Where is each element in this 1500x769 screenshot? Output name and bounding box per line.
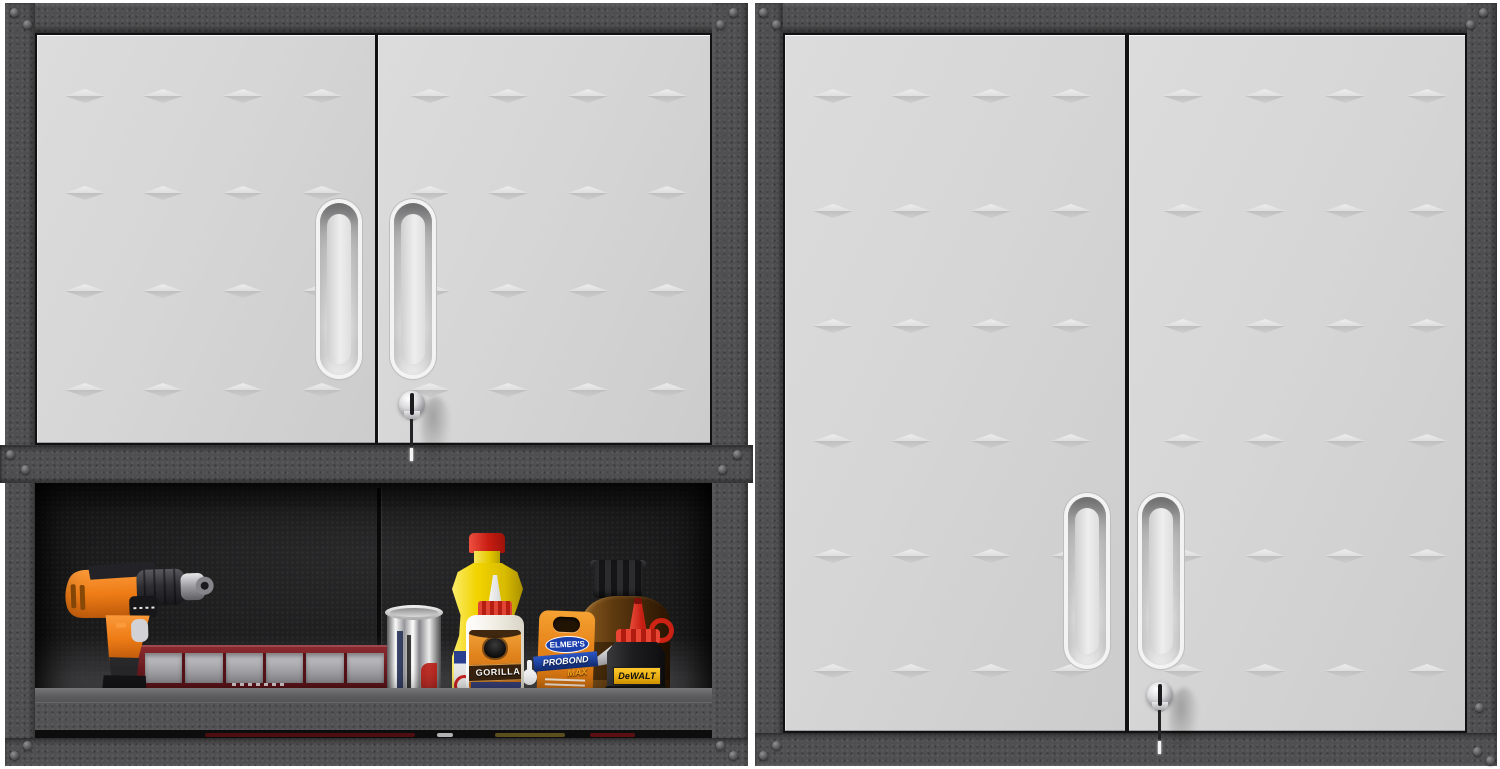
rivet <box>733 450 742 459</box>
emboss-diamond <box>1245 89 1285 103</box>
emboss-diamond <box>1407 549 1447 563</box>
emboss-diamond <box>488 186 528 200</box>
rivet <box>772 741 781 750</box>
chrome-canister <box>385 605 443 693</box>
drill-rear-vent <box>71 584 77 608</box>
gorilla-glue-bottle: GORILLA <box>466 575 524 693</box>
cabinet-open-shelf: ELMER'S PROBOND MAX GORILLA <box>5 3 748 766</box>
emboss-diamond <box>568 284 608 298</box>
dewalt-brand-label: DeWALT <box>613 667 661 685</box>
emboss-diamond <box>488 89 528 103</box>
dewalt-chalk-bottle: DeWALT <box>607 598 665 693</box>
lock-shadow <box>1169 688 1199 754</box>
emboss-diamond <box>143 89 183 103</box>
emboss-diamond <box>971 434 1011 448</box>
emboss-diamond <box>1245 434 1285 448</box>
rivet <box>772 20 781 29</box>
emboss-diamond <box>488 284 528 298</box>
cordless-drill <box>58 553 223 693</box>
frame-bottom-rail <box>5 738 748 766</box>
emboss-diamond <box>143 186 183 200</box>
lock-keyslot <box>410 393 414 415</box>
rivet <box>23 741 32 750</box>
gorilla-label-arc <box>469 630 521 638</box>
slot-reflection <box>495 733 565 737</box>
left-cabinet-doors-area <box>35 33 712 445</box>
emboss-diamond <box>65 284 105 298</box>
rivet <box>10 8 19 17</box>
drill-trigger <box>131 619 149 643</box>
right-cabinet-left-door <box>785 35 1125 731</box>
emboss-diamond <box>568 89 608 103</box>
rivet <box>1479 8 1488 17</box>
emboss-diamond <box>410 89 450 103</box>
emboss-diamond <box>813 89 853 103</box>
rivet <box>21 465 30 474</box>
rivet <box>6 450 15 459</box>
emboss-diamond <box>813 549 853 563</box>
emboss-diamond <box>891 204 931 218</box>
emboss-diamond <box>1245 549 1285 563</box>
emboss-diamond <box>302 383 342 397</box>
emboss-diamond <box>223 186 263 200</box>
emboss-diamond <box>65 186 105 200</box>
emboss-diamond <box>1325 204 1365 218</box>
emboss-diamond <box>1245 204 1285 218</box>
emboss-diamond <box>1051 434 1091 448</box>
emboss-diamond <box>1163 89 1203 103</box>
open-shelf-interior: ELMER'S PROBOND MAX GORILLA <box>35 480 712 693</box>
emboss-diamond <box>223 383 263 397</box>
key-tip <box>1158 741 1161 754</box>
rivet <box>1473 747 1482 756</box>
emboss-diamond <box>891 664 931 678</box>
emboss-diamond <box>143 284 183 298</box>
emboss-diamond <box>1325 89 1365 103</box>
frame-top-bar <box>5 3 748 33</box>
emboss-diamond <box>1325 319 1365 333</box>
organizer-small-print <box>232 683 288 686</box>
key-stem <box>1158 710 1161 742</box>
emboss-diamond <box>891 319 931 333</box>
emboss-diamond <box>1245 319 1285 333</box>
emboss-diamond <box>65 89 105 103</box>
emboss-diamond <box>1407 204 1447 218</box>
slot-reflection <box>590 733 635 737</box>
emboss-diamond <box>302 186 342 200</box>
rivet <box>1475 703 1484 712</box>
rivet <box>729 8 738 17</box>
canister-label-stripe <box>407 635 411 693</box>
emboss-diamond <box>813 204 853 218</box>
emboss-diamond <box>1163 319 1203 333</box>
frame-right-strip <box>1467 3 1497 766</box>
emboss-diamond <box>143 383 183 397</box>
right-cabinet-right-door-handle <box>1142 497 1180 665</box>
frame-top-bar <box>755 3 1497 33</box>
emboss-diamond <box>813 664 853 678</box>
rivet <box>10 751 19 760</box>
rivet <box>718 465 727 474</box>
emboss-diamond <box>971 549 1011 563</box>
emboss-diamond <box>488 383 528 397</box>
emboss-diamond <box>1407 319 1447 333</box>
shelf-front-panel <box>35 702 712 730</box>
emboss-diamond <box>1245 664 1285 678</box>
elmers-probond-package: ELMER'S PROBOND MAX <box>537 610 596 693</box>
gorilla-nozzle <box>485 575 505 603</box>
emboss-diamond <box>1325 664 1365 678</box>
emboss-diamond <box>1051 319 1091 333</box>
shelf-lip-top <box>35 688 712 702</box>
emboss-diamond <box>971 319 1011 333</box>
frame-middle-rail <box>0 445 753 483</box>
emboss-diamond <box>1325 549 1365 563</box>
emboss-diamond <box>891 549 931 563</box>
dewalt-spout-tip <box>634 598 642 604</box>
emboss-diamond <box>813 319 853 333</box>
amber-bottle-cap <box>593 560 643 598</box>
emboss-diamond <box>891 89 931 103</box>
yellow-bottle-cap <box>469 533 505 553</box>
emboss-diamond <box>647 383 687 397</box>
gorilla-face <box>484 638 506 658</box>
slot-reflection <box>437 733 453 737</box>
elmers-hang-hole <box>553 617 581 633</box>
emboss-diamond <box>302 89 342 103</box>
dewalt-cap-base <box>616 629 660 644</box>
frame-left-strip <box>755 3 783 766</box>
emboss-diamond <box>971 664 1011 678</box>
rivet <box>716 741 725 750</box>
drill-logo-mark <box>116 622 126 627</box>
frame-bottom-rail <box>755 733 1497 766</box>
left-cabinet-left-door <box>37 35 375 443</box>
drill-rear-vent <box>80 585 86 610</box>
rivet <box>729 751 738 760</box>
lock-keyslot <box>1158 684 1162 706</box>
emboss-diamond <box>971 204 1011 218</box>
emboss-diamond <box>1407 434 1447 448</box>
rivet <box>759 751 768 760</box>
emboss-diamond <box>1163 664 1203 678</box>
emboss-diamond <box>971 89 1011 103</box>
emboss-diamond <box>1051 664 1091 678</box>
key-stem <box>410 419 413 449</box>
emboss-diamond <box>65 383 105 397</box>
canister-label-stripe <box>397 631 403 691</box>
frame-left-strip <box>5 3 35 766</box>
emboss-diamond <box>647 186 687 200</box>
elmers-variant-text: MAX <box>567 667 588 679</box>
gorilla-label: GORILLA <box>469 630 521 690</box>
emboss-diamond <box>647 284 687 298</box>
right-cabinet-left-door-handle <box>1068 497 1106 665</box>
emboss-diamond <box>223 284 263 298</box>
rivet <box>716 20 725 29</box>
key-tip <box>410 448 413 461</box>
left-cabinet-left-door-handle <box>320 203 358 375</box>
rivet <box>1486 756 1495 765</box>
emboss-diamond <box>1051 204 1091 218</box>
gorilla-brand-banner: GORILLA <box>469 663 521 682</box>
rivet <box>1466 20 1475 29</box>
emboss-diamond <box>1407 89 1447 103</box>
rivet <box>23 20 32 29</box>
emboss-diamond <box>891 434 931 448</box>
emboss-diamond <box>1051 89 1091 103</box>
lock-shadow <box>421 397 451 463</box>
slot-reflection <box>205 733 415 737</box>
right-cabinet-doors-area <box>783 33 1467 733</box>
left-cabinet-right-door <box>378 35 710 443</box>
rivet <box>759 8 768 17</box>
frame-right-strip <box>712 3 748 766</box>
product-image-two-wall-cabinets: ELMER'S PROBOND MAX GORILLA <box>0 0 1500 769</box>
right-cabinet-right-door <box>1129 35 1465 731</box>
emboss-diamond <box>647 89 687 103</box>
emboss-diamond <box>223 89 263 103</box>
emboss-diamond <box>1407 664 1447 678</box>
emboss-diamond <box>1163 434 1203 448</box>
left-cabinet-right-door-handle <box>394 203 432 375</box>
emboss-diamond <box>568 186 608 200</box>
emboss-diamond <box>1325 434 1365 448</box>
canister-lid-inner <box>390 608 438 617</box>
emboss-diamond <box>1163 204 1203 218</box>
cabinet-closed <box>755 3 1497 766</box>
emboss-diamond <box>813 434 853 448</box>
emboss-diamond <box>568 383 608 397</box>
emboss-diamond <box>410 186 450 200</box>
